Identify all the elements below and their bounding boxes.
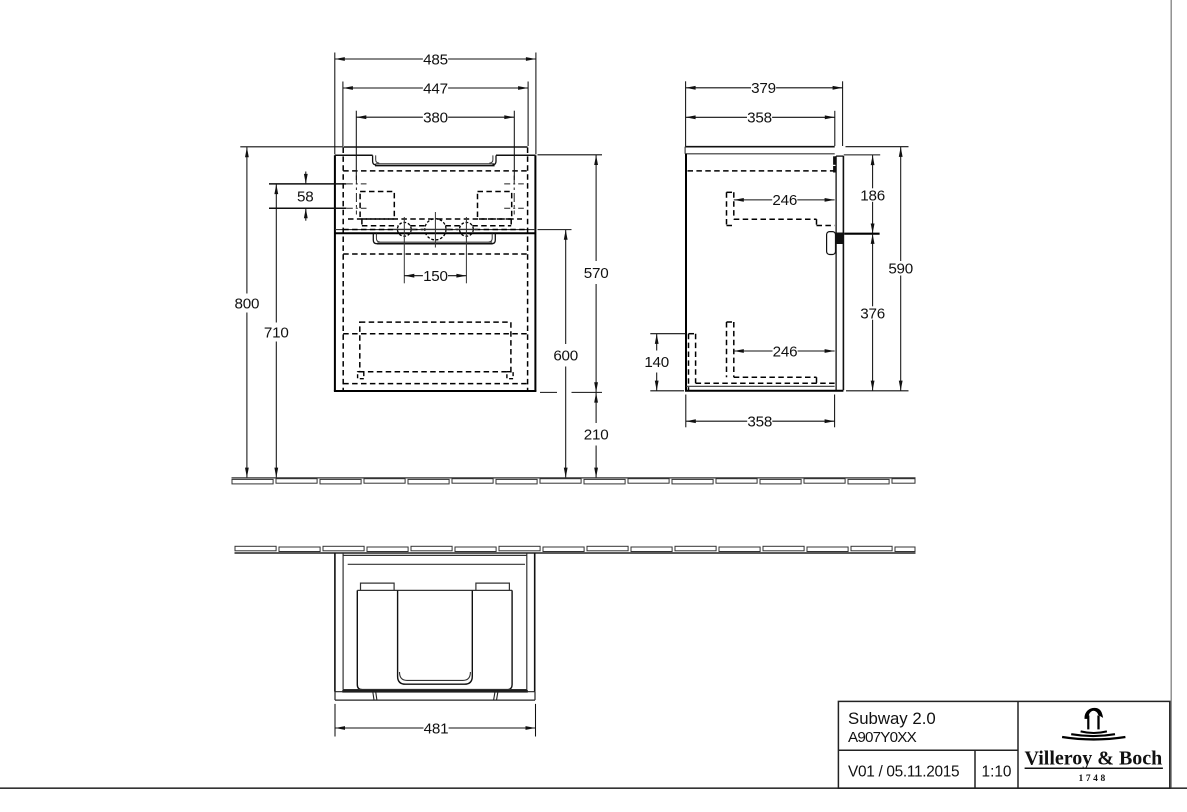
svg-text:186: 186 [860, 187, 885, 204]
svg-text:1:10: 1:10 [982, 763, 1012, 780]
svg-text:447: 447 [423, 80, 448, 97]
svg-text:V01 / 05.11.2015: V01 / 05.11.2015 [848, 763, 959, 780]
svg-text:380: 380 [423, 110, 448, 127]
svg-text:358: 358 [747, 110, 772, 127]
svg-text:481: 481 [424, 720, 449, 737]
svg-text:590: 590 [888, 261, 913, 278]
svg-text:210: 210 [584, 427, 609, 444]
svg-text:358: 358 [747, 414, 772, 431]
svg-text:710: 710 [264, 324, 289, 341]
svg-text:150: 150 [423, 268, 448, 285]
svg-text:Villeroy & Boch: Villeroy & Boch [1025, 747, 1163, 769]
svg-text:140: 140 [644, 354, 669, 371]
svg-text:570: 570 [584, 265, 609, 282]
svg-text:379: 379 [751, 80, 776, 97]
svg-text:58: 58 [297, 188, 314, 205]
svg-text:485: 485 [423, 51, 448, 68]
svg-text:1748: 1748 [1078, 774, 1107, 784]
svg-text:A907Y0XX: A907Y0XX [848, 729, 917, 746]
svg-text:376: 376 [860, 305, 885, 322]
svg-text:800: 800 [235, 295, 260, 312]
svg-text:600: 600 [553, 348, 578, 365]
svg-text:Subway 2.0: Subway 2.0 [848, 709, 936, 728]
svg-text:246: 246 [773, 343, 798, 360]
svg-text:246: 246 [772, 192, 797, 209]
